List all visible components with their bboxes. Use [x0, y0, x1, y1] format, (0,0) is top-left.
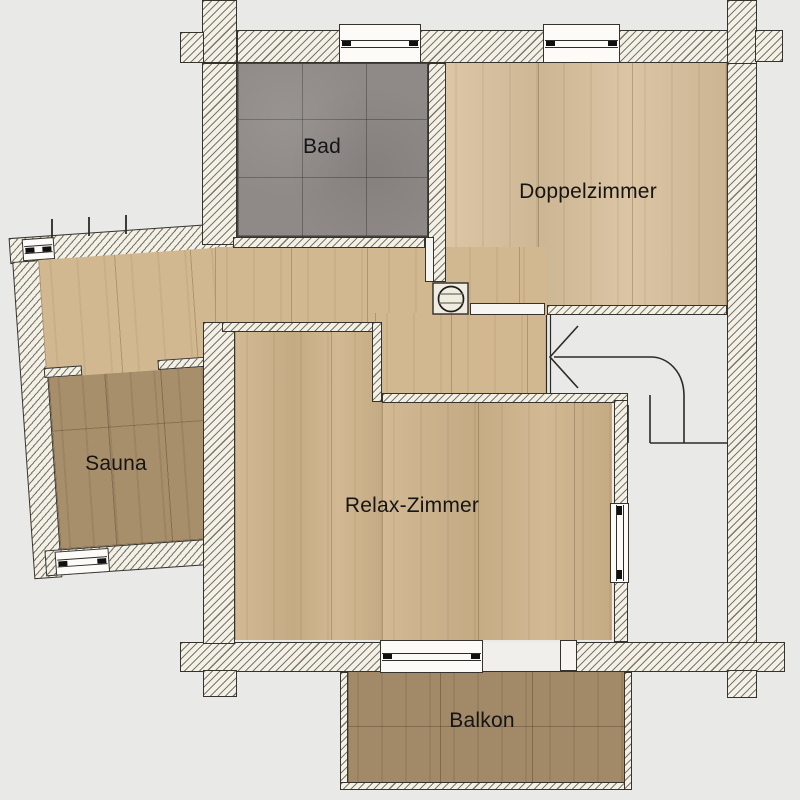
doppelzimmer-label: Doppelzimmer: [519, 180, 657, 204]
relax-window-icon: [380, 640, 483, 673]
relax-notch-horizontal-wall: [382, 393, 628, 403]
top-left-wall-stub-v: [202, 0, 237, 63]
relax-east-window-icon: [610, 503, 629, 583]
balkon-door-opening: [483, 642, 560, 671]
stairwell-jamb-lines: [547, 315, 551, 393]
sauna-window-icon: [55, 548, 111, 576]
balkon-rail-right: [624, 672, 632, 790]
west-thick-wall: [203, 322, 235, 644]
balkon-door-frame: [560, 640, 577, 671]
floor-plan: Bad Doppelzimmer Sauna Relax-Zimmer Balk…: [0, 0, 800, 800]
balkon-rail-left: [340, 672, 348, 790]
doppelzimmer-door-opening: [470, 303, 545, 315]
bad-label: Bad: [303, 135, 341, 159]
doppelzimmer-window-icon: [543, 24, 620, 63]
bottom-left-wall-stub: [203, 670, 237, 697]
top-right-wall-stub-h: [755, 30, 783, 62]
relax-floor-left: [235, 332, 382, 640]
relax-zimmer-label: Relax-Zimmer: [345, 494, 479, 518]
top-left-wall-stub-h: [180, 32, 204, 63]
relax-top-thin-wall: [222, 322, 375, 332]
bad-left-wall: [202, 63, 237, 245]
bad-door-opening: [425, 237, 434, 282]
relax-notch-vertical-wall: [372, 322, 382, 402]
sauna-label: Sauna: [85, 452, 147, 476]
stair-landing-lines: [628, 395, 727, 443]
west-window-icon: [22, 237, 55, 261]
doppel-bottom-thin-wall: [547, 305, 727, 315]
top-wall: [237, 30, 757, 63]
balkon-rail-bottom: [340, 782, 632, 790]
bottom-right-wall-stub: [727, 670, 757, 698]
right-wall: [727, 63, 757, 672]
bad-bottom-wall: [233, 237, 425, 248]
relax-floor-right: [382, 402, 612, 640]
balkon-label: Balkon: [449, 709, 514, 733]
bad-window-icon: [339, 24, 421, 63]
hall-floor-lower: [375, 313, 547, 393]
stair-arrowhead: [550, 326, 578, 388]
